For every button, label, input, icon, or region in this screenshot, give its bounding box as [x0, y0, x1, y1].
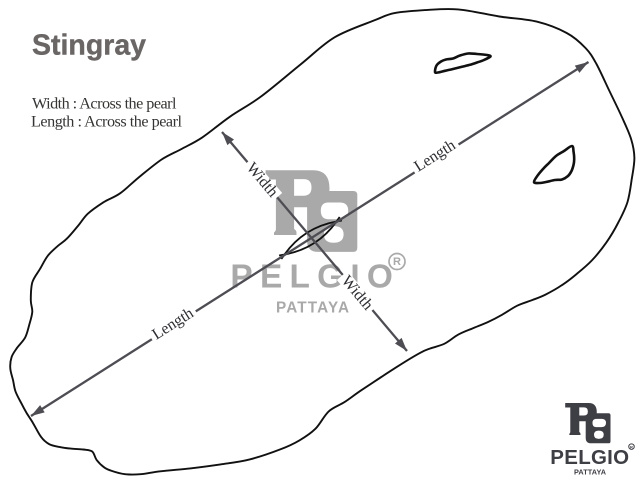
svg-text:R: R	[630, 444, 633, 449]
svg-text:R: R	[393, 256, 401, 268]
svg-text:PELGIO: PELGIO	[550, 446, 629, 469]
svg-text:Width : Across the pearl: Width : Across the pearl	[32, 95, 177, 113]
svg-text:Length : Across the pearl: Length : Across the pearl	[31, 112, 183, 130]
svg-text:PATTAYA: PATTAYA	[276, 300, 349, 317]
svg-text:Stingray: Stingray	[32, 29, 146, 61]
svg-text:PATTAYA: PATTAYA	[574, 468, 607, 477]
